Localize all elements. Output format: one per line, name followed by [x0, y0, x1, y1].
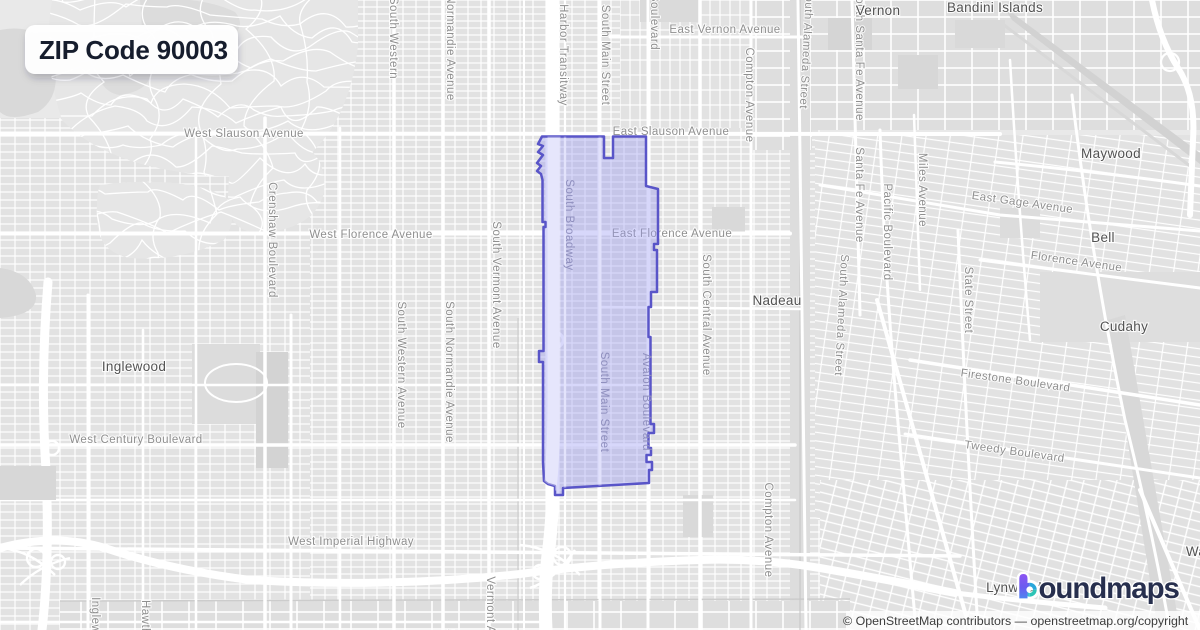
svg-text:Compton Avenue: Compton Avenue — [743, 47, 755, 142]
svg-text:South Central Avenue: South Central Avenue — [700, 254, 712, 376]
svg-text:Crenshaw Boulevard: Crenshaw Boulevard — [266, 182, 278, 298]
svg-text:Pacific Boulevard: Pacific Boulevard — [881, 183, 893, 280]
svg-text:South Western Avenue: South Western Avenue — [395, 301, 407, 428]
svg-text:Vernon: Vernon — [856, 3, 901, 18]
svg-text:ZIP Code 90003: ZIP Code 90003 — [39, 35, 228, 65]
svg-text:Compton Avenue: Compton Avenue — [762, 482, 774, 577]
svg-text:Avalon Boulevard: Avalon Boulevard — [640, 353, 652, 451]
svg-text:oundmaps: oundmaps — [1039, 572, 1180, 605]
svg-text:Boulevard: Boulevard — [648, 0, 660, 50]
svg-text:Hawthorne Boulevard: Hawthorne Boulevard — [139, 600, 151, 630]
svg-text:Santa Fe Avenue: Santa Fe Avenue — [853, 147, 865, 243]
svg-text:© OpenStreetMap contributors —: © OpenStreetMap contributors — openstree… — [843, 614, 1189, 628]
svg-text:State Street: State Street — [962, 267, 974, 334]
svg-text:Miles Avenue: Miles Avenue — [916, 153, 928, 227]
svg-text:Inglewood Avenue: Inglewood Avenue — [89, 597, 101, 630]
svg-text:Vermont Avenue: Vermont Avenue — [484, 576, 496, 630]
svg-text:Harbor Transitway: Harbor Transitway — [557, 4, 569, 106]
svg-text:East Vernon Avenue: East Vernon Avenue — [669, 24, 780, 36]
svg-text:Cudahy: Cudahy — [1100, 319, 1148, 334]
svg-text:South Broadway: South Broadway — [563, 179, 575, 270]
svg-text:South Western: South Western — [387, 0, 399, 79]
svg-text:Inglewood: Inglewood — [102, 359, 166, 374]
svg-text:South Main Street: South Main Street — [598, 352, 610, 453]
svg-text:West Slauson Avenue: West Slauson Avenue — [184, 128, 304, 140]
svg-text:West Century Boulevard: West Century Boulevard — [69, 434, 202, 446]
svg-text:Nadeau: Nadeau — [752, 293, 801, 308]
svg-text:West Imperial Highway: West Imperial Highway — [288, 536, 414, 548]
svg-text:Bandini Islands: Bandini Islands — [947, 0, 1043, 15]
svg-text:Wa: Wa — [1186, 544, 1200, 559]
svg-text:South Vermont Avenue: South Vermont Avenue — [490, 221, 502, 348]
svg-text:Normandie Avenue: Normandie Avenue — [444, 0, 456, 101]
svg-text:Maywood: Maywood — [1081, 146, 1141, 161]
svg-text:Bell: Bell — [1091, 230, 1115, 245]
svg-text:South Main Street: South Main Street — [599, 5, 611, 106]
svg-text:West Florence Avenue: West Florence Avenue — [309, 229, 432, 241]
svg-text:South Santa Fe Avenue: South Santa Fe Avenue — [853, 0, 865, 121]
svg-text:South Normandie Avenue: South Normandie Avenue — [443, 301, 455, 443]
